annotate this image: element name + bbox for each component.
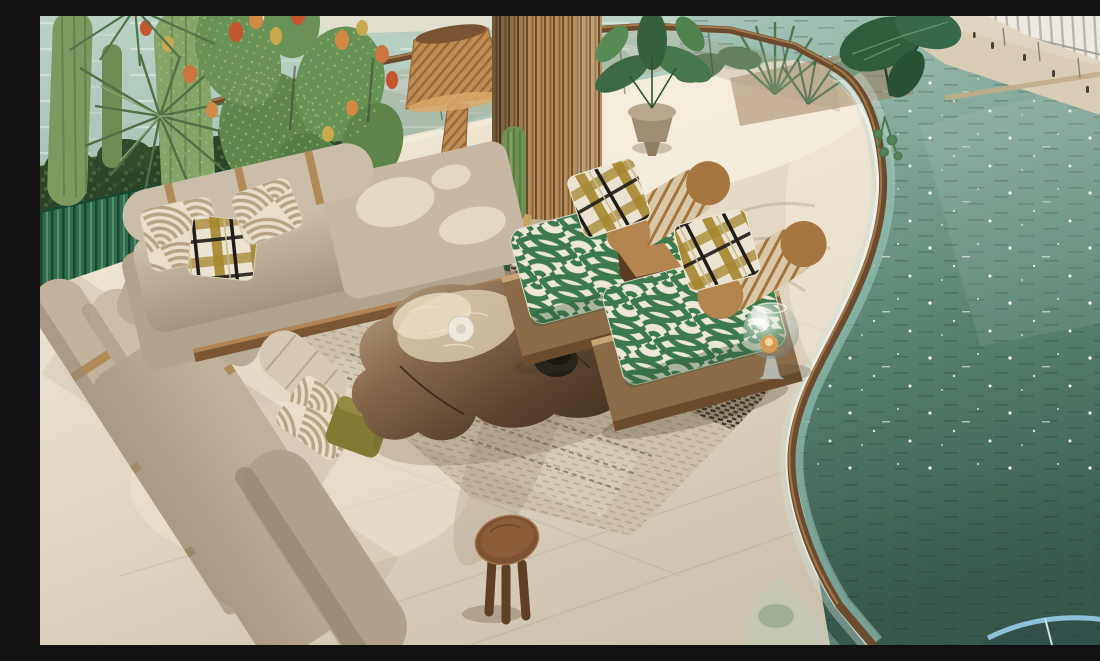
lantern-flame: [765, 338, 773, 346]
white-dish-center: [456, 324, 466, 334]
terrace-aerial-photo: [40, 16, 1100, 645]
columnar-cactus-3: [102, 44, 122, 168]
columnar-cactus-1: [47, 16, 94, 207]
pane-green-reflection: [758, 604, 794, 628]
